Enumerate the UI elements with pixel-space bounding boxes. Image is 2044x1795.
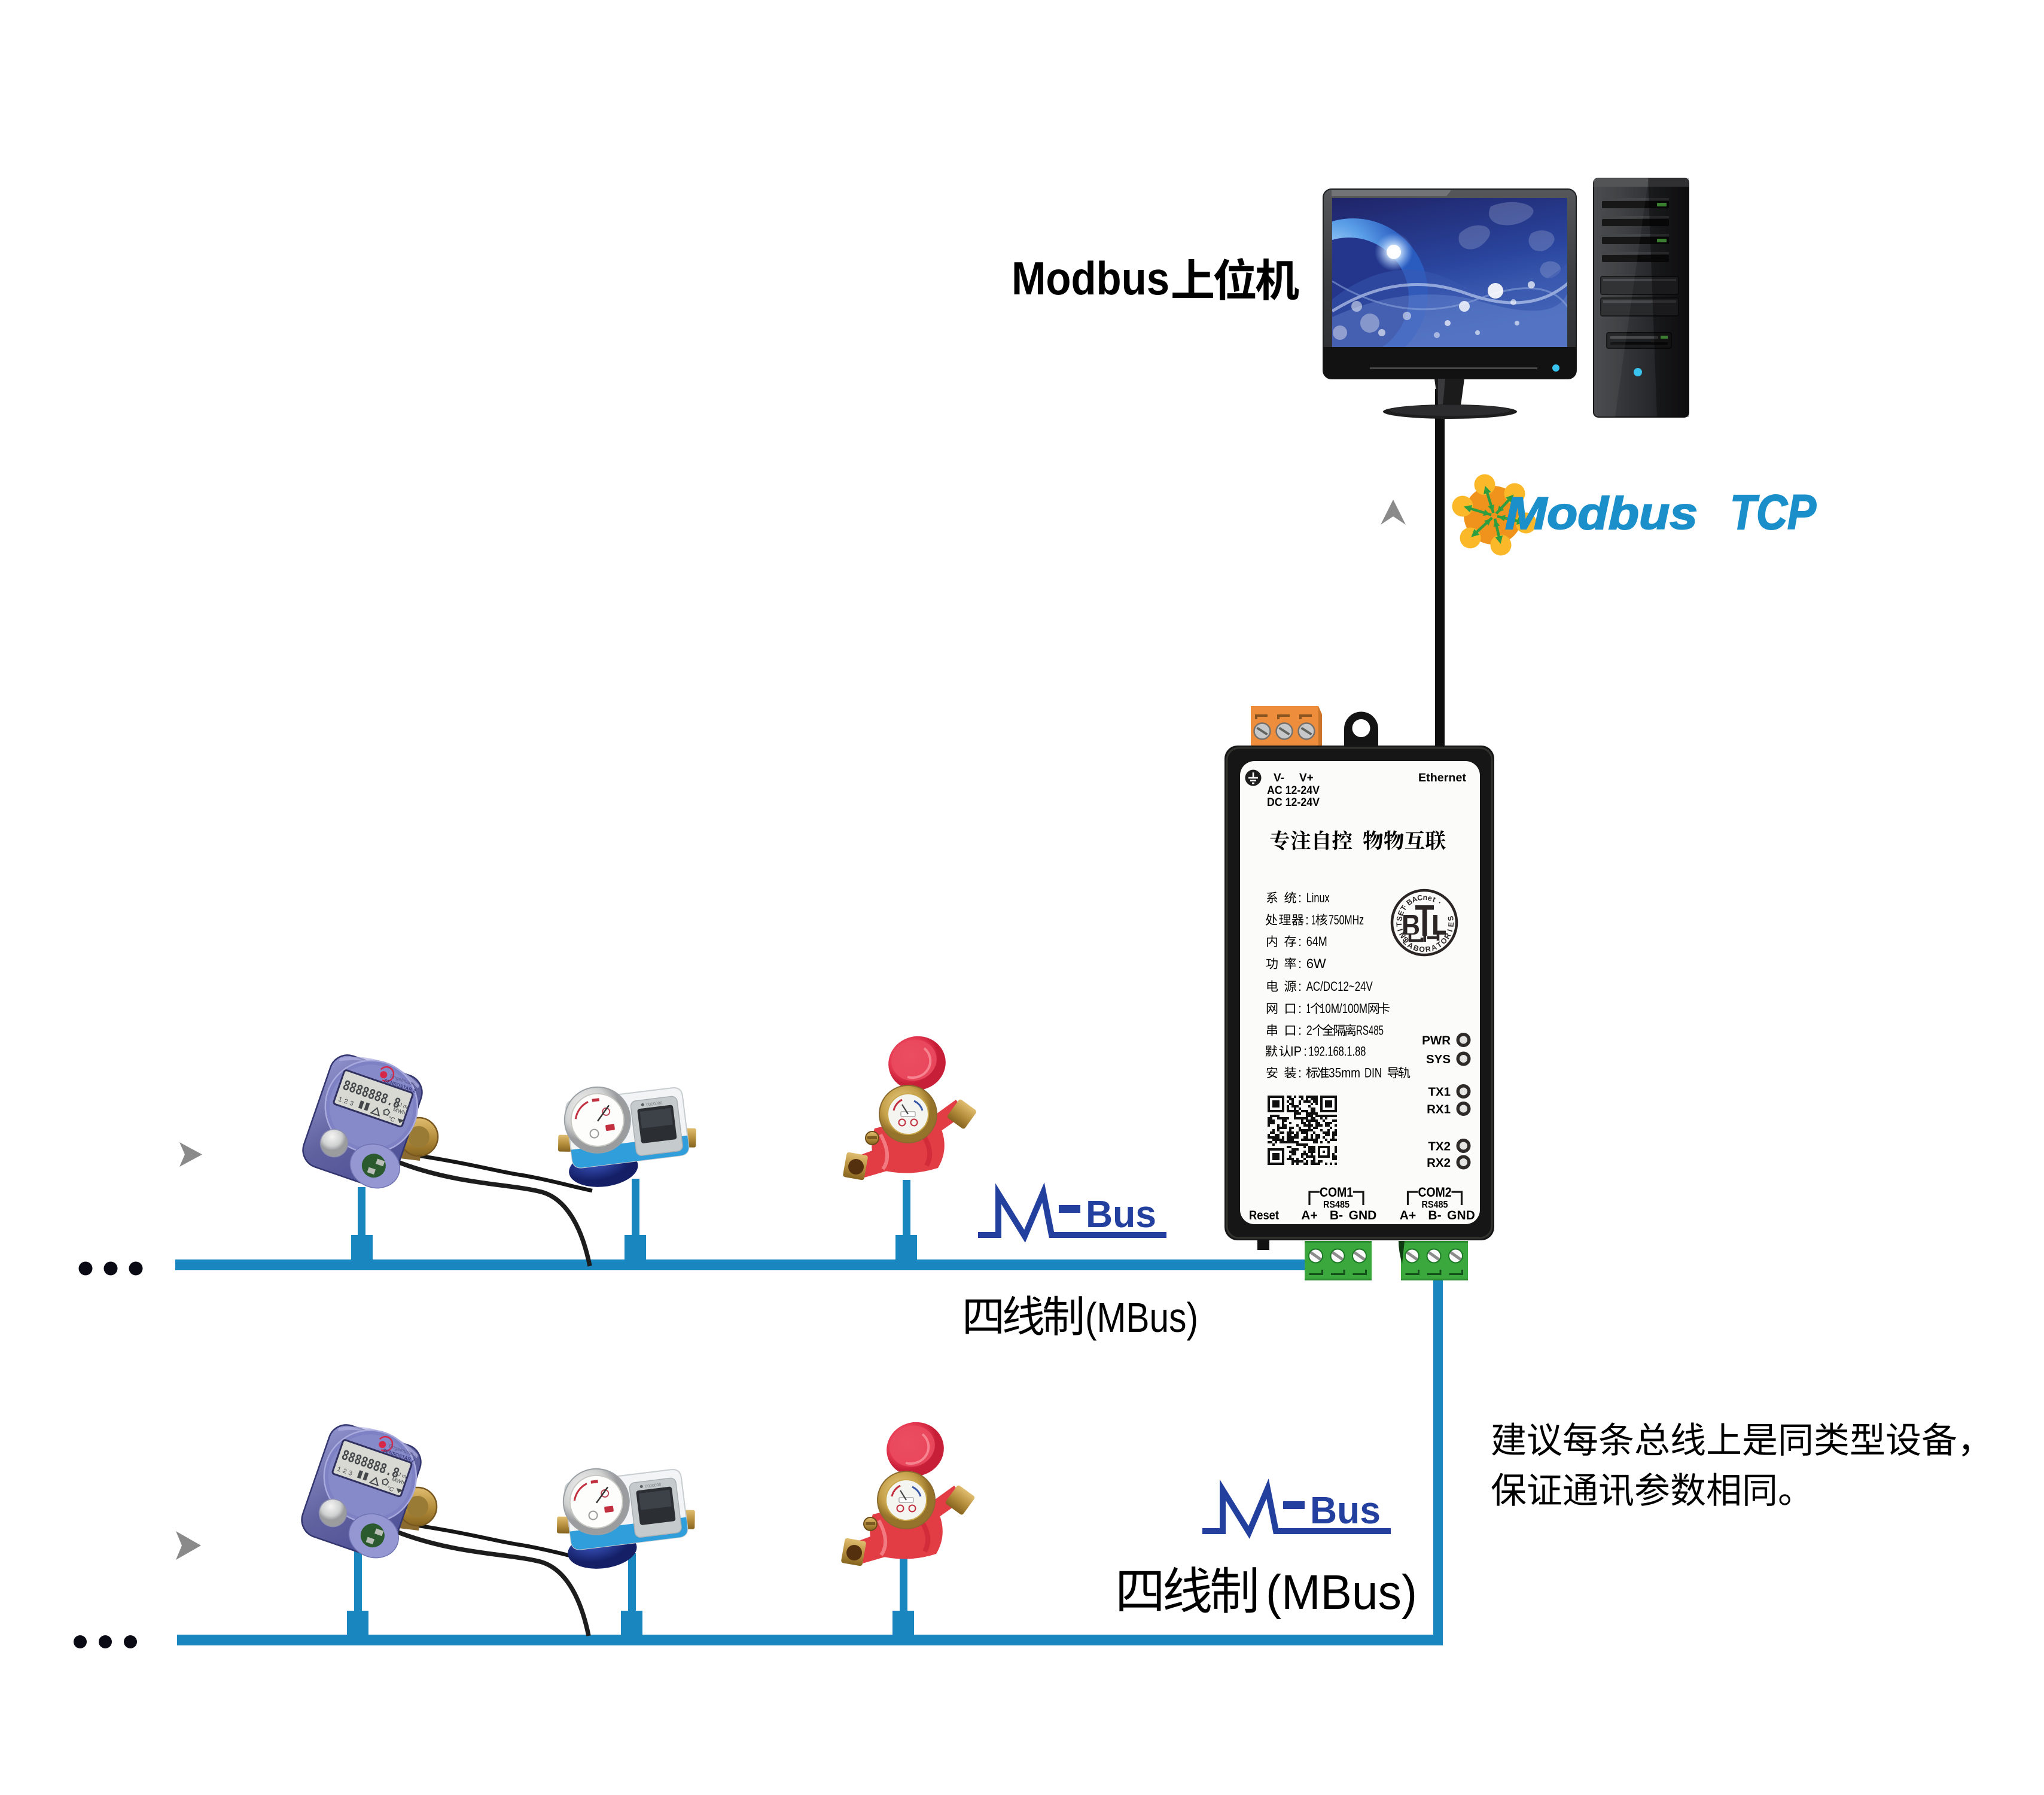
svg-text:B-: B- xyxy=(1330,1209,1343,1222)
svg-text::: : xyxy=(1298,956,1302,971)
svg-text:IP: IP xyxy=(1290,1044,1302,1059)
svg-text:RX1: RX1 xyxy=(1427,1103,1451,1116)
svg-text:RS485: RS485 xyxy=(1356,1023,1384,1038)
svg-text:1: 1 xyxy=(1311,912,1315,927)
svg-text:V+: V+ xyxy=(1299,772,1314,784)
svg-text:Linux: Linux xyxy=(1306,890,1330,905)
svg-text:64M: 64M xyxy=(1306,934,1327,949)
svg-text:A+: A+ xyxy=(1400,1209,1416,1222)
svg-text:V-: V- xyxy=(1274,772,1284,784)
svg-text:750MHz: 750MHz xyxy=(1329,912,1364,927)
svg-text:TCP: TCP xyxy=(1730,485,1816,540)
svg-text:10M/100M: 10M/100M xyxy=(1320,1001,1367,1016)
svg-text:35mm: 35mm xyxy=(1329,1066,1360,1081)
svg-text:AC 12-24V: AC 12-24V xyxy=(1267,784,1320,797)
svg-text:SYS: SYS xyxy=(1426,1052,1451,1066)
svg-text:B-: B- xyxy=(1428,1209,1441,1222)
svg-text:Bus: Bus xyxy=(1310,1489,1381,1532)
svg-text:192.168.1.88: 192.168.1.88 xyxy=(1308,1044,1366,1059)
svg-text:COM1: COM1 xyxy=(1320,1185,1353,1200)
svg-text:DC 12-24V: DC 12-24V xyxy=(1267,796,1320,809)
svg-text:A+: A+ xyxy=(1301,1209,1317,1222)
svg-text:TX2: TX2 xyxy=(1428,1140,1451,1154)
svg-text:Ethernet: Ethernet xyxy=(1418,771,1466,784)
svg-text:6W: 6W xyxy=(1306,956,1326,971)
svg-text:AC/DC12~24V: AC/DC12~24V xyxy=(1306,979,1373,994)
svg-text:GND: GND xyxy=(1349,1209,1377,1222)
svg-text:(MBus): (MBus) xyxy=(1085,1294,1198,1341)
svg-text:2: 2 xyxy=(1306,1023,1312,1038)
svg-text:Bus: Bus xyxy=(1086,1192,1156,1236)
svg-text::: : xyxy=(1305,912,1309,927)
svg-text:DIN: DIN xyxy=(1364,1066,1382,1081)
svg-text::: : xyxy=(1298,1023,1302,1038)
svg-text:T: T xyxy=(1395,921,1404,927)
svg-text:COM2: COM2 xyxy=(1418,1185,1452,1200)
svg-text:GND: GND xyxy=(1447,1209,1475,1222)
svg-text:(MBus): (MBus) xyxy=(1266,1565,1417,1620)
svg-text::: : xyxy=(1303,1044,1307,1059)
svg-text:PWR: PWR xyxy=(1422,1034,1451,1048)
svg-text::: : xyxy=(1298,1066,1302,1081)
svg-text::: : xyxy=(1298,934,1302,949)
svg-text:Modbus: Modbus xyxy=(1505,488,1698,539)
svg-text::: : xyxy=(1298,1001,1302,1016)
svg-text:TX1: TX1 xyxy=(1428,1085,1451,1099)
svg-text:RX2: RX2 xyxy=(1427,1156,1451,1170)
svg-text:Modbus: Modbus xyxy=(1012,252,1169,305)
svg-text::: : xyxy=(1298,979,1302,994)
svg-text:1: 1 xyxy=(1306,1001,1311,1016)
svg-text::: : xyxy=(1298,890,1302,905)
svg-text:E: E xyxy=(1447,921,1456,927)
svg-text:Reset: Reset xyxy=(1249,1209,1279,1222)
